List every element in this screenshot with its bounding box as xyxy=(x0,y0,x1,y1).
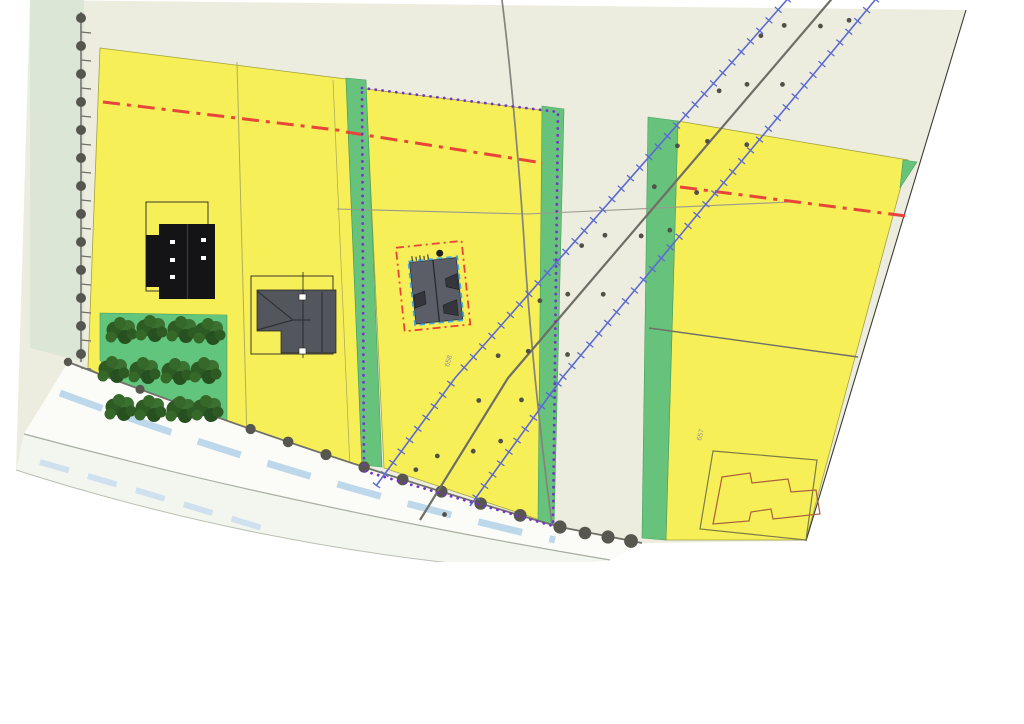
title-block: N Situatie - kavel 3 Schaal 1:500 inform… xyxy=(0,562,1024,724)
situation-plan-sheet: 658 657 N Situatie - kavel 3 Schaal 1:50… xyxy=(0,0,1024,724)
site-plan-map: 658 657 xyxy=(0,0,1024,562)
parcel-right xyxy=(666,121,908,540)
left-verge xyxy=(30,0,84,362)
